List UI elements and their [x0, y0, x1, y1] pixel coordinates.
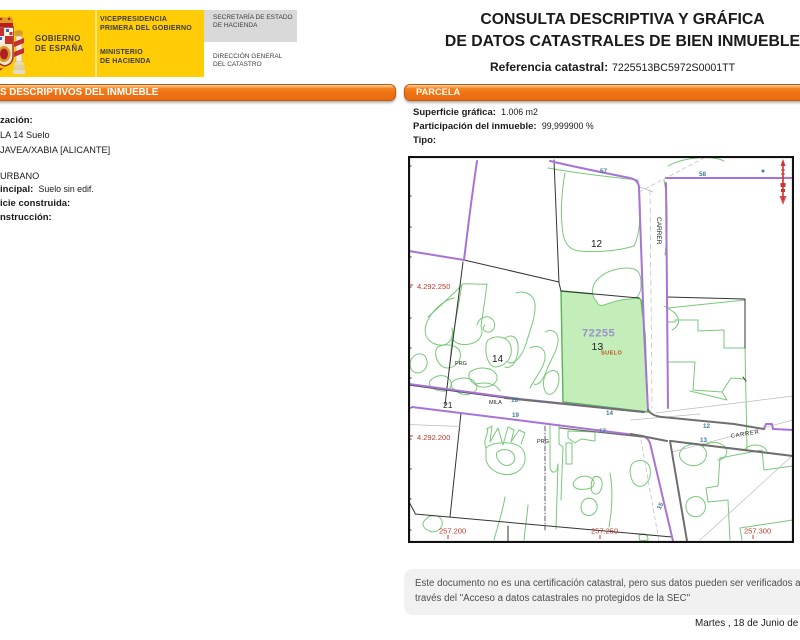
svg-text:257.250: 257.250	[591, 527, 618, 536]
svg-text:72255: 72255	[582, 328, 615, 340]
svg-text:257.200: 257.200	[439, 527, 466, 536]
svg-text:14: 14	[492, 354, 504, 365]
svg-text:257.300: 257.300	[744, 527, 771, 536]
svg-text:16: 16	[511, 397, 519, 404]
svg-text:PRG: PRG	[537, 439, 549, 445]
svg-text:58: 58	[699, 171, 707, 178]
svg-text:4.292.250: 4.292.250	[417, 282, 450, 291]
svg-text:4.292.200: 4.292.200	[417, 433, 450, 442]
svg-text:13: 13	[700, 437, 708, 444]
svg-text:17: 17	[599, 428, 607, 435]
svg-text:MILA: MILA	[489, 400, 502, 406]
svg-text:SUELO: SUELO	[601, 351, 623, 357]
svg-text:PRG: PRG	[455, 361, 467, 367]
svg-text:12: 12	[591, 239, 603, 250]
svg-text:14: 14	[606, 410, 614, 417]
svg-text:57: 57	[600, 168, 608, 175]
svg-text:CARRER: CARRER	[655, 217, 662, 245]
svg-text:12: 12	[703, 423, 711, 430]
svg-text:19: 19	[512, 412, 520, 419]
svg-text:13: 13	[592, 341, 604, 353]
svg-text:21: 21	[443, 400, 453, 410]
